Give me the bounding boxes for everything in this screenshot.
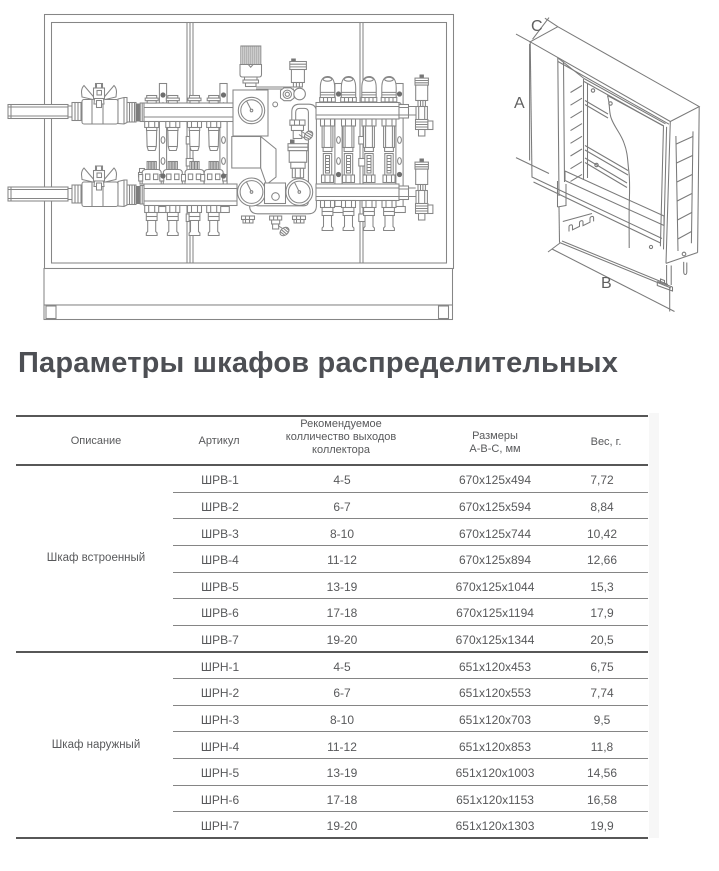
svg-text:A: A: [514, 95, 525, 112]
svg-text:B: B: [601, 275, 612, 292]
svg-text:C: C: [531, 18, 543, 35]
